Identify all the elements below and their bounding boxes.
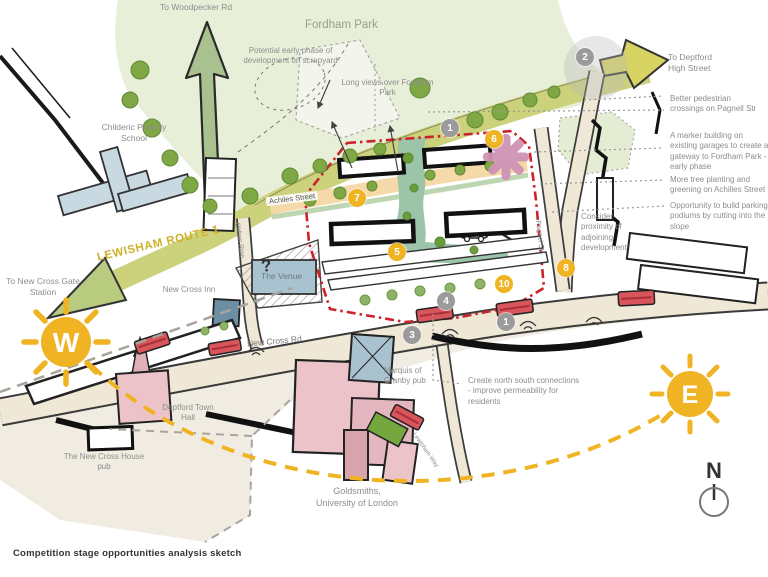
note-long-views: Long views over Fordham Park	[335, 78, 440, 99]
badge-gray-3: 3	[403, 326, 421, 344]
sun-east-label: E	[682, 381, 699, 409]
badge-gray-4: 4	[437, 292, 455, 310]
north-label: N	[706, 458, 722, 483]
childeric-school-label: Childeric Primary School	[88, 122, 180, 144]
direction-new-cross-gate: To New Cross Gate Station	[2, 276, 84, 298]
badge-yellow-8: 8	[557, 259, 575, 277]
note-north-south: Create north south connections - improve…	[468, 376, 580, 407]
opportunities-sketch-map: W E N ? To Woodpecker Rd Fordham Park Po…	[0, 0, 768, 577]
sun-east: E	[652, 356, 728, 432]
note-parking-podiums: Opportunity to build parking podiums by …	[670, 201, 768, 232]
sun-west: W	[24, 300, 108, 384]
badge-gray-1: 1	[441, 119, 459, 137]
sun-west-label: W	[53, 327, 80, 358]
direction-deptford: To Deptford High Street	[668, 52, 730, 74]
badge-gray-1b: 1	[497, 313, 515, 331]
marquis-label: Marquis of Granby pub	[384, 366, 448, 387]
note-crossings: Better pedestrian crossings on Pagnell S…	[670, 94, 765, 115]
note-marker-building: A marker building on existing garages to…	[670, 131, 768, 173]
goldsmiths-label: Goldsmiths, University of London	[314, 486, 400, 509]
badge-gray-2: 2	[576, 48, 594, 66]
note-scrapyard: Potential early phase of development on …	[238, 46, 343, 67]
badge-yellow-7: 7	[348, 189, 366, 207]
badge-yellow-10: 10	[495, 275, 513, 293]
town-hall-label: Deptford Town Hall	[156, 403, 220, 424]
sketch-caption: Competition stage opportunities analysis…	[13, 548, 241, 559]
the-venue-label: The Venue	[261, 271, 302, 282]
crossing-highlight	[564, 36, 628, 100]
clifton-tall-block	[203, 158, 235, 231]
note-tree-planting: More tree planting and greening on Achil…	[670, 175, 768, 196]
fordham-park-label: Fordham Park	[305, 18, 378, 33]
badge-yellow-5: 5	[388, 243, 406, 261]
new-cross-inn-label: New Cross Inn	[160, 285, 218, 295]
railway-line	[0, 0, 122, 208]
badge-yellow-6: 6	[485, 130, 503, 148]
note-adjoining: Consider proximity of adjoining developm…	[581, 212, 647, 254]
new-cross-house-label: The New Cross House pub	[62, 452, 146, 473]
direction-woodpecker: To Woodpecker Rd	[160, 2, 255, 13]
north-compass: N	[700, 458, 728, 516]
